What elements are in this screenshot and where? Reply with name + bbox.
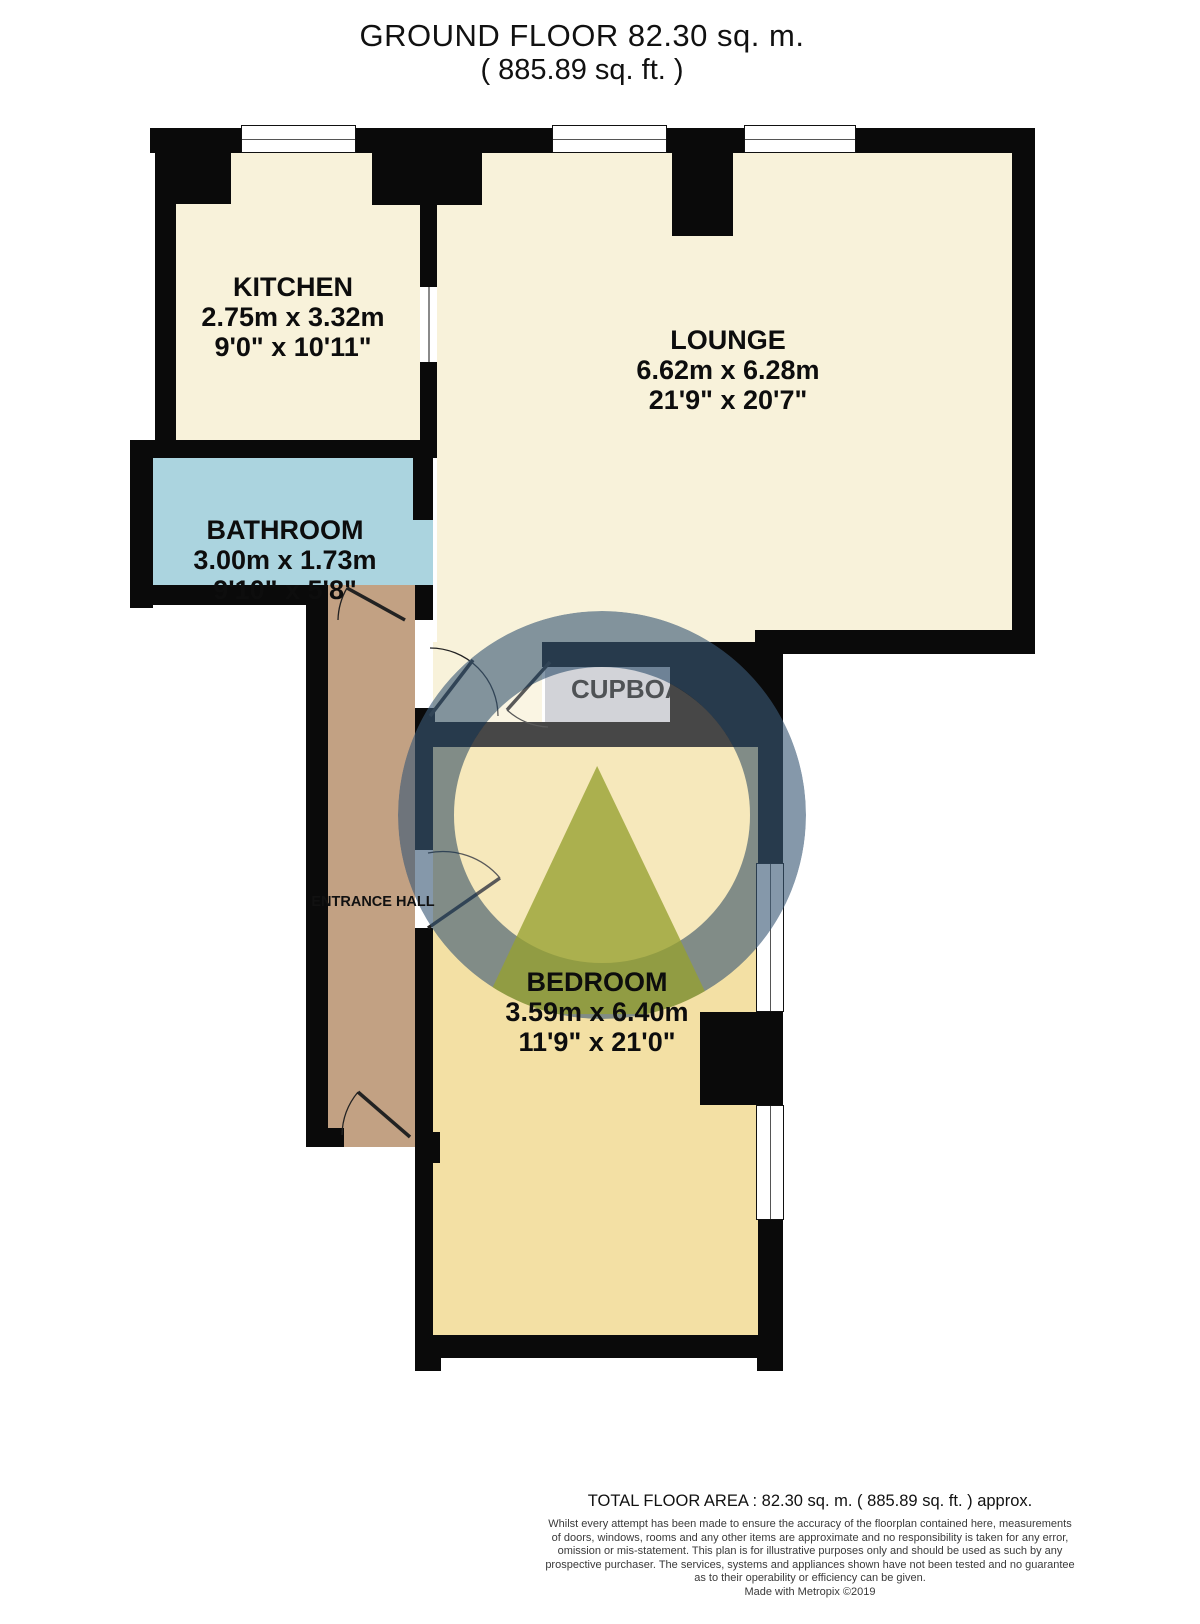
door-swings [0,0,1200,1624]
bedroom-dim-imperial: 11'9" x 21'0" [505,1027,688,1057]
bedroom-door-leaf [428,878,500,928]
lounge-label: LOUNGE 6.62m x 6.28m 21'9" x 20'7" [636,325,819,415]
cupboard-door-leaf [507,662,550,710]
lobby-door-leaf [430,660,473,716]
bedroom-door-arc [428,852,500,878]
lounge-dim-imperial: 21'9" x 20'7" [636,385,819,415]
floor-title-sqft: ( 885.89 sq. ft. ) [182,54,982,87]
bathroom-label: BATHROOM 3.00m x 1.73m 9'10" x 5'8" [193,515,376,605]
lobby-door-arc [430,648,498,716]
kitchen-dim-metric: 2.75m x 3.32m [201,302,384,332]
bathroom-dim-imperial: 9'10" x 5'8" [193,575,376,605]
kitchen-label: KITCHEN 2.75m x 3.32m 9'0" x 10'11" [201,272,384,362]
front-door-leaf [358,1092,410,1137]
bathroom-dim-metric: 3.00m x 1.73m [193,545,376,575]
disclaimer-line: prospective purchaser. The services, sys… [410,1559,1200,1573]
kitchen-name: KITCHEN [201,272,384,302]
cupboard-door-arc [507,710,548,727]
disclaimer-line: as to their operability or efficiency ca… [410,1572,1200,1586]
disclaimer-line: Whilst every attempt has been made to en… [410,1518,1200,1532]
page-title: GROUND FLOOR 82.30 sq. m. ( 885.89 sq. f… [182,18,982,87]
bathroom-name: BATHROOM [193,515,376,545]
floorplan: GROUND FLOOR 82.30 sq. m. ( 885.89 sq. f… [0,0,1200,1624]
front-door-arc [342,1092,358,1135]
lounge-dim-metric: 6.62m x 6.28m [636,355,819,385]
bedroom-label: BEDROOM 3.59m x 6.40m 11'9" x 21'0" [505,967,688,1057]
disclaimer-line: omission or mis-statement. This plan is … [410,1545,1200,1559]
disclaimer-line: of doors, windows, rooms and any other i… [410,1532,1200,1546]
credit-line: Made with Metropix ©2019 [410,1586,1200,1600]
total-floor-area: TOTAL FLOOR AREA : 82.30 sq. m. ( 885.89… [410,1490,1200,1512]
entrance-hall-label: ENTRANCE HALL [311,894,434,910]
bedroom-name: BEDROOM [505,967,688,997]
bedroom-dim-metric: 3.59m x 6.40m [505,997,688,1027]
lounge-name: LOUNGE [636,325,819,355]
floor-title: GROUND FLOOR 82.30 sq. m. [182,18,982,54]
kitchen-dim-imperial: 9'0" x 10'11" [201,332,384,362]
footer: TOTAL FLOOR AREA : 82.30 sq. m. ( 885.89… [410,1490,1200,1599]
